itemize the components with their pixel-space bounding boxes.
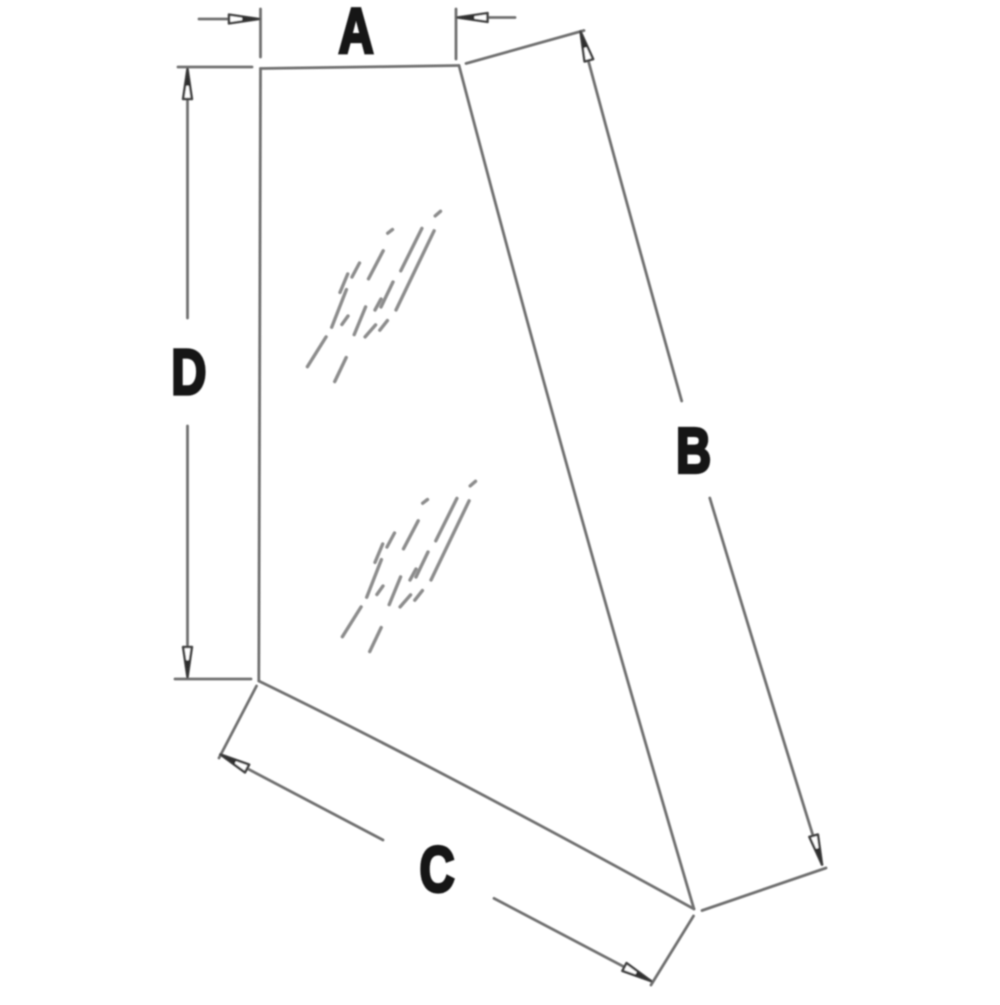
svg-text:C: C: [419, 835, 454, 906]
svg-text:B: B: [676, 416, 711, 487]
svg-text:D: D: [171, 338, 206, 409]
svg-text:A: A: [338, 0, 373, 68]
